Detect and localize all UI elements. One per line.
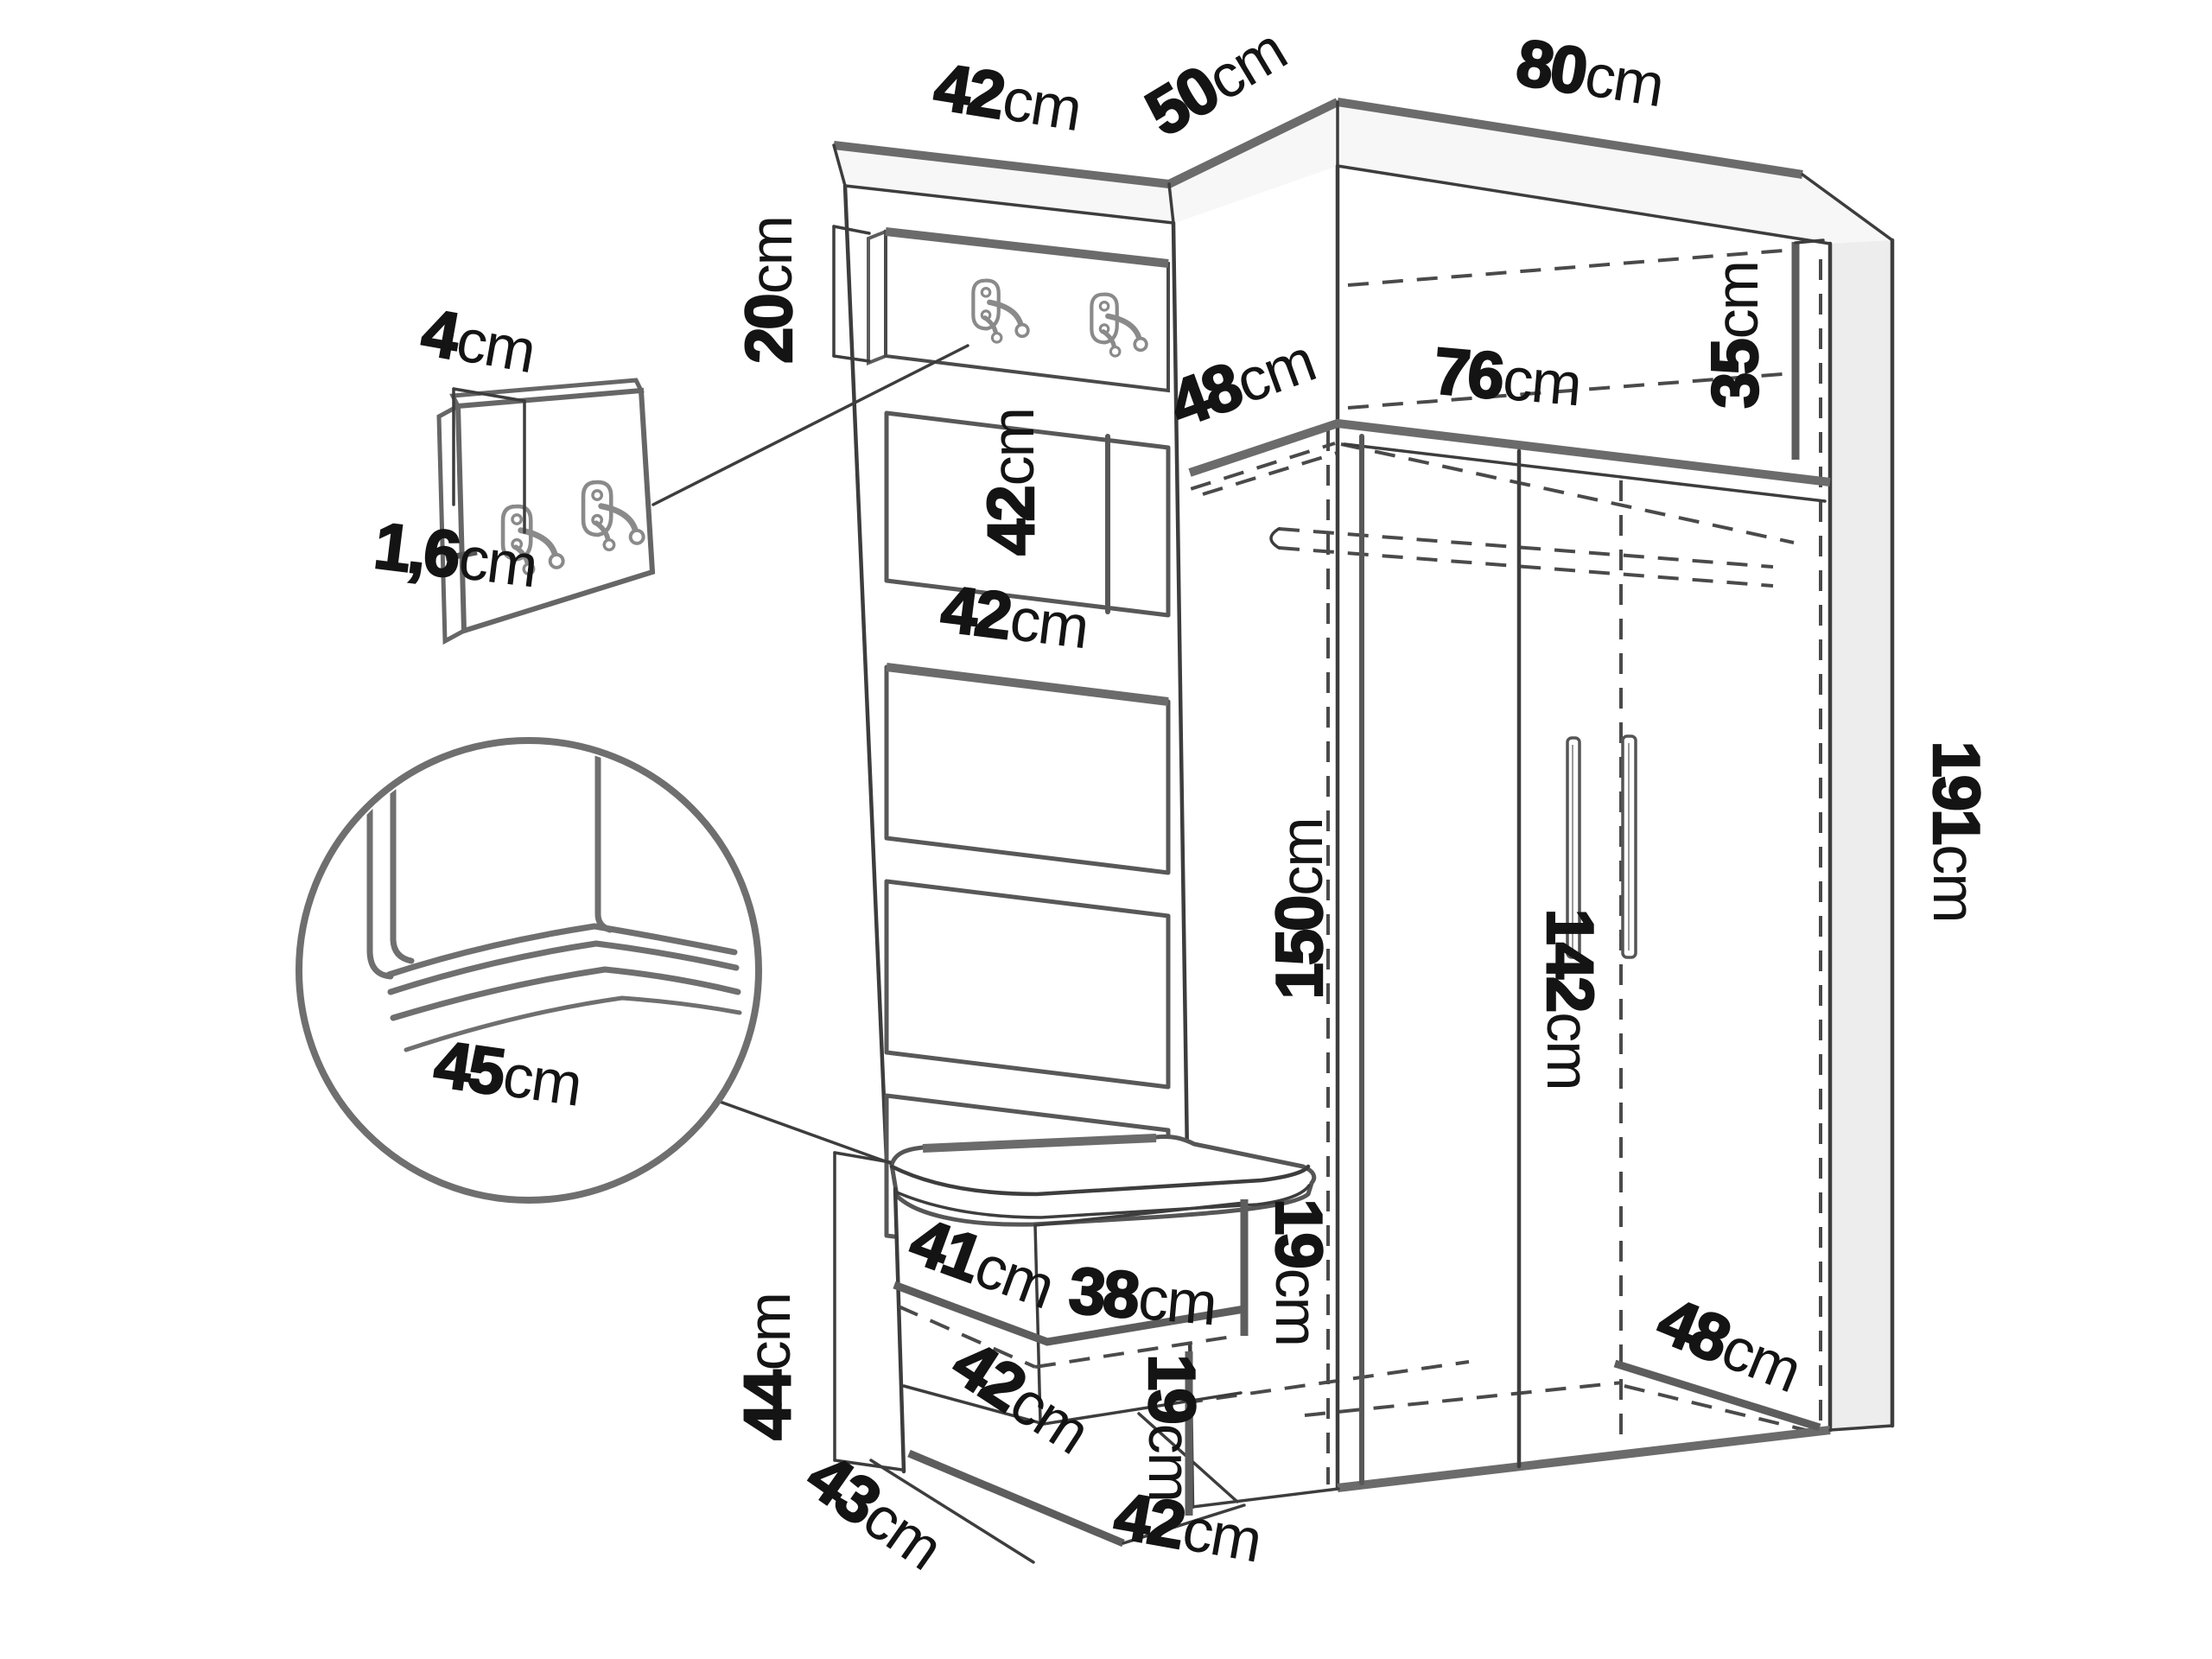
- dim-label-hook-detail-spacing: 4cm: [416, 296, 540, 387]
- furniture-dimension-diagram: 42cm50cm80cm4cm1,6cm20cm48cm76cm35cm42cm…: [0, 0, 2212, 1659]
- dim-label-bench-opening-height: 19cm: [1262, 1198, 1335, 1345]
- dim-label-wardrobe-top-width: 80cm: [1511, 26, 1668, 122]
- dim-label-hook-board-height: 20cm: [733, 217, 806, 364]
- door-handle: [1623, 736, 1636, 957]
- dim-label-bench-height: 44cm: [731, 1294, 804, 1440]
- dim-label-door-height: 142cm: [1533, 908, 1606, 1089]
- detail-leader-line: [710, 1098, 890, 1163]
- detail-circle: [299, 741, 759, 1200]
- detail-hook-board: [458, 391, 652, 631]
- dim-label-wardrobe-inner-height: 150cm: [1263, 818, 1337, 999]
- dim-label-wardrobe-height: 191cm: [1919, 741, 1993, 921]
- page: 42cm50cm80cm4cm1,6cm20cm48cm76cm35cm42cm…: [0, 0, 2212, 1659]
- dim-label-top-shelf-height: 35cm: [1699, 262, 1772, 409]
- dim-label-panel-segment-height: 42cm: [975, 409, 1048, 556]
- dim-label-panel-top-width: 42cm: [929, 50, 1085, 146]
- dim-label-bench-lower-height: 19cm: [1135, 1354, 1208, 1501]
- seat-detail-view: [299, 741, 890, 1200]
